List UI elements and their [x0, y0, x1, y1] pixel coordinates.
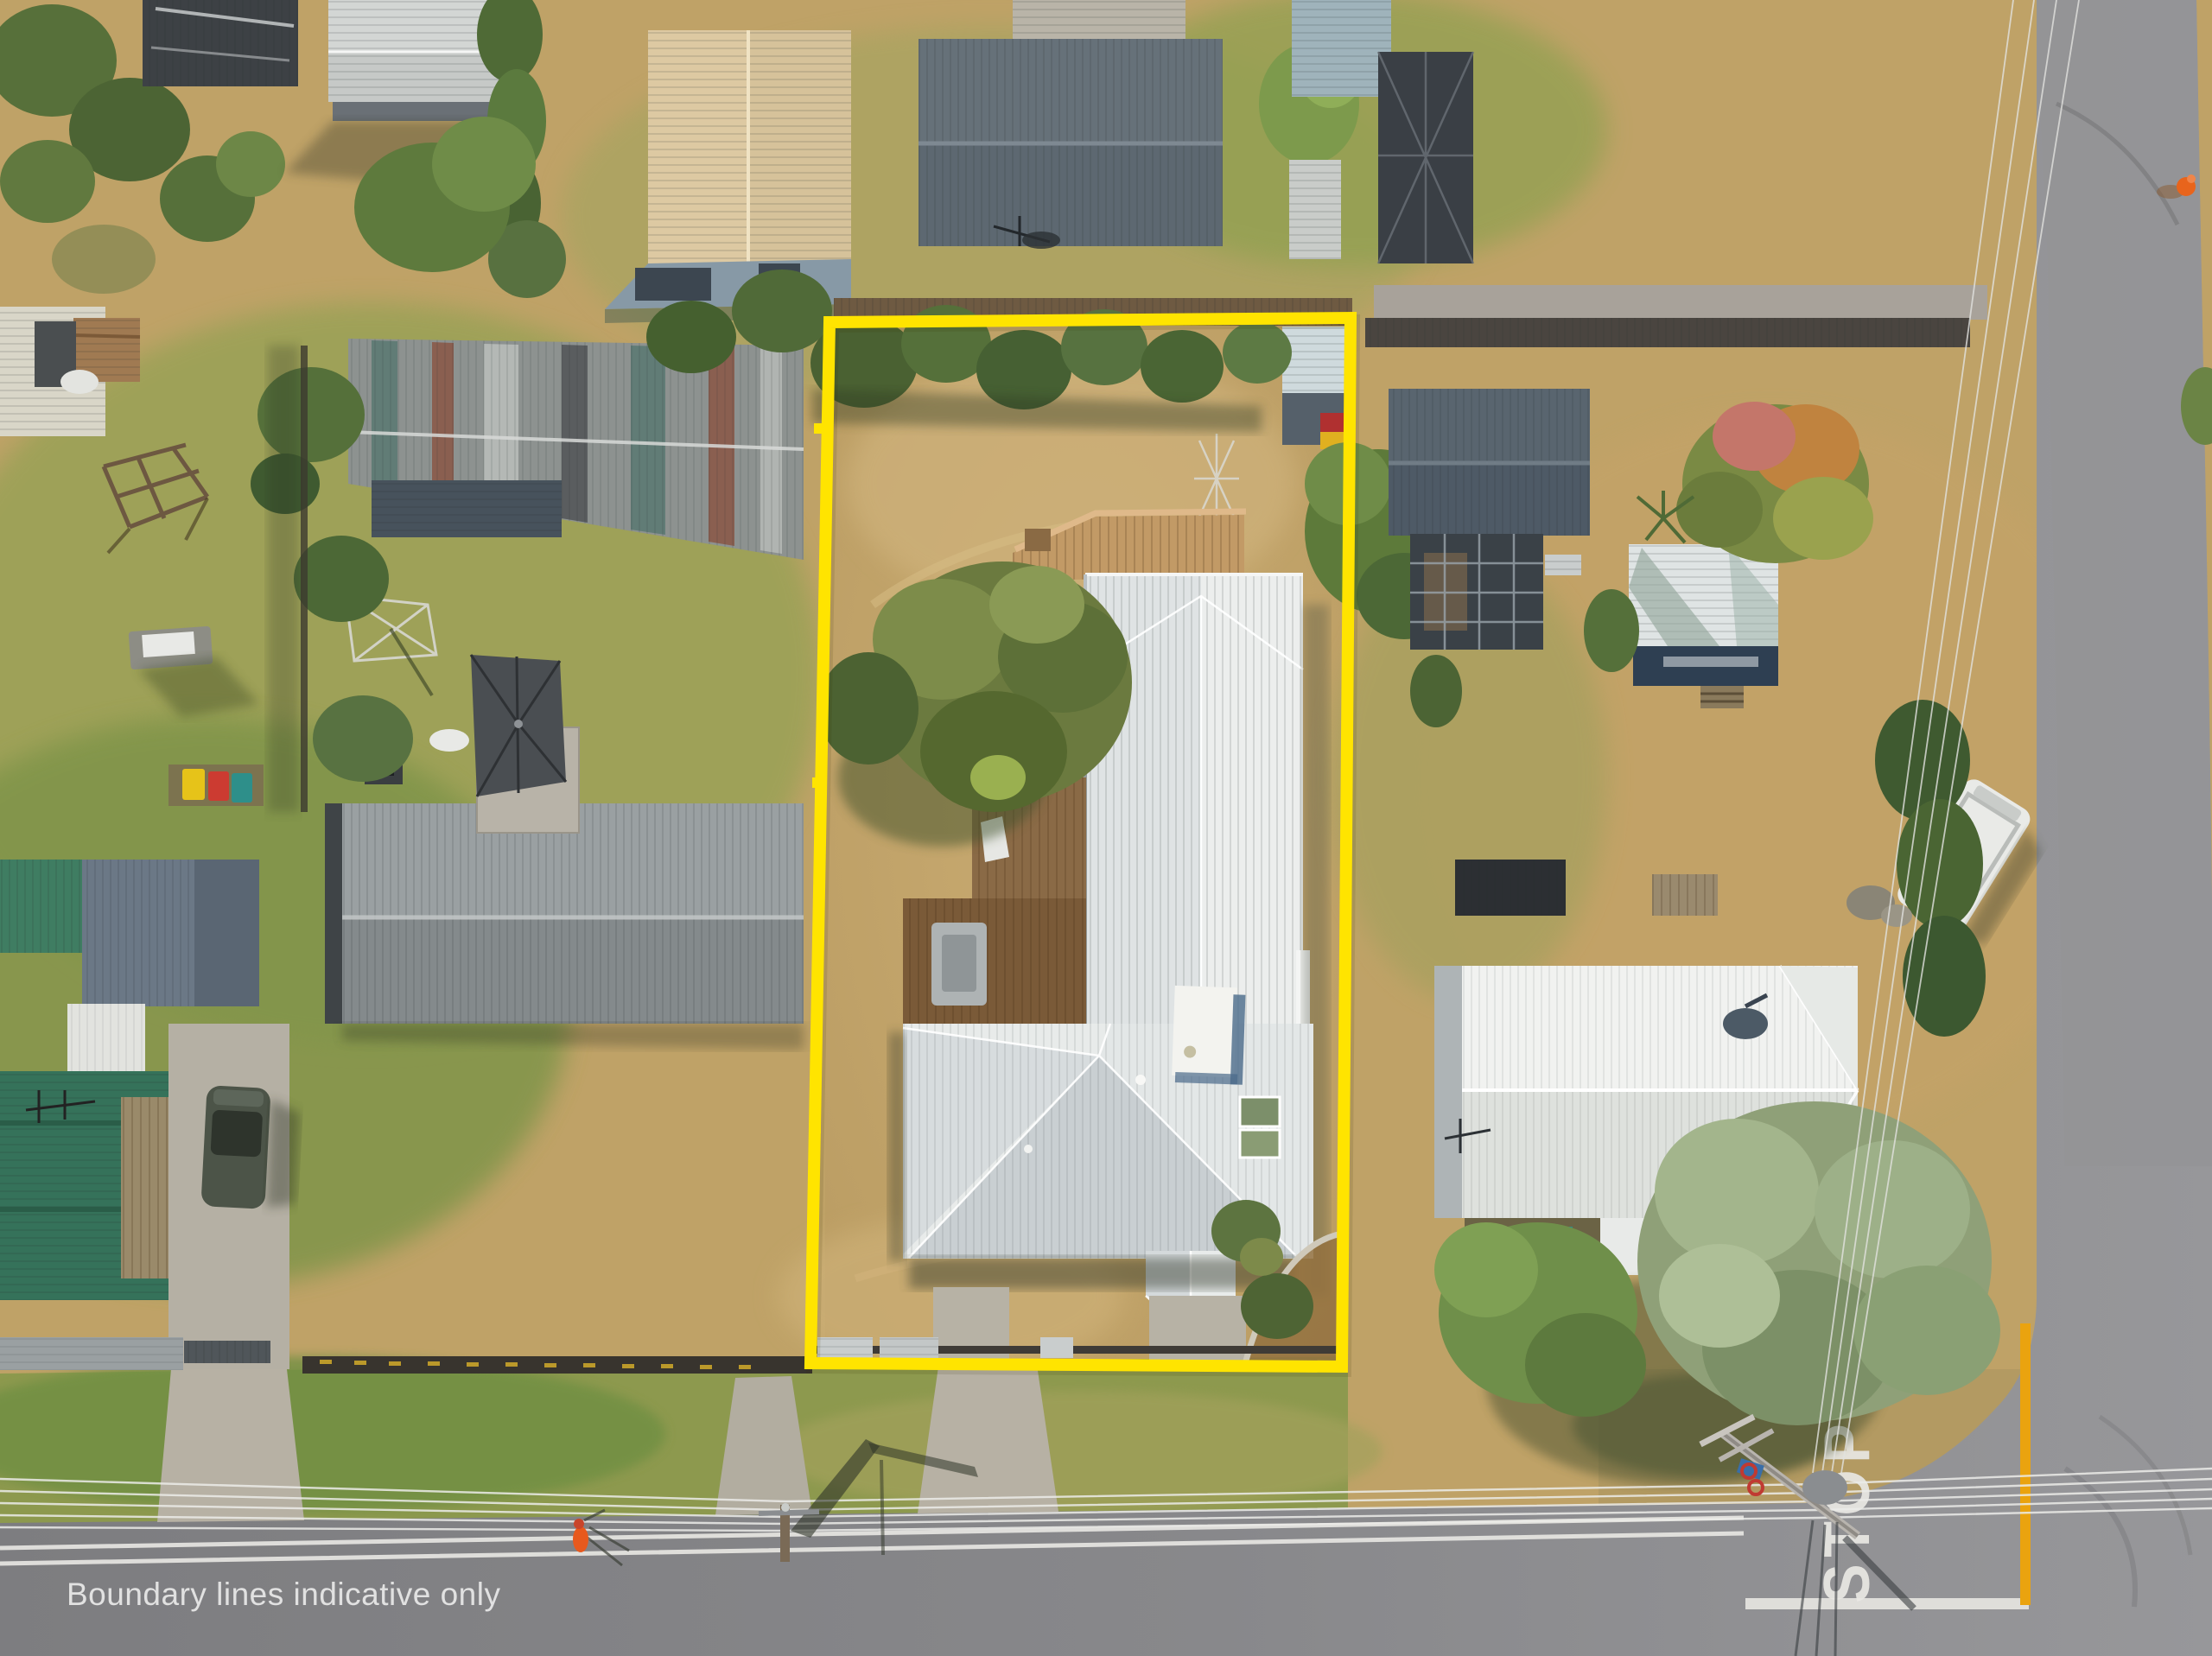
satellite-dish: [1723, 1008, 1768, 1039]
stop-bar-line: [1745, 1598, 2029, 1609]
charcoal-roof-building: [143, 0, 298, 86]
light-green-bush: [970, 755, 1026, 800]
garden-shrub: [1241, 1273, 1313, 1339]
left-houses: [0, 860, 302, 1370]
no-stopping-yellow-line: [2020, 1323, 2031, 1605]
roof-windows: [1240, 1097, 1280, 1158]
small-shed: [1282, 327, 1348, 449]
sleeper-wall: [302, 1356, 812, 1374]
tiny-cabin: [1629, 544, 1778, 708]
outdoor-bathtub: [429, 729, 469, 752]
park-fence: [301, 346, 308, 812]
white-dish: [60, 370, 99, 394]
watermark-text: Boundary lines indicative only: [67, 1577, 500, 1612]
red-vehicle: [1320, 413, 1344, 434]
gravel-lane: [1374, 285, 1987, 320]
wheelie-bins: [168, 765, 264, 806]
grey-barn: [325, 803, 804, 1050]
dark-bluegrey-building: [918, 39, 1223, 249]
cabin-steps: [1700, 686, 1744, 708]
dark-slate-house: [1389, 389, 1590, 536]
aerial-photo: STOP: [0, 0, 2212, 1656]
aerial-photo-canvas: STOP: [0, 0, 2212, 1656]
skylight: [1172, 986, 1246, 1085]
